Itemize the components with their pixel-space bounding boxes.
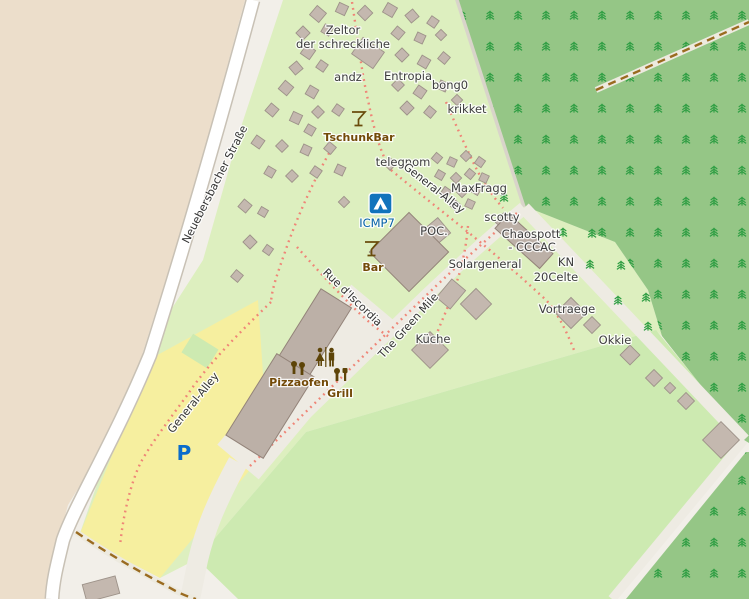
label-andz: andz: [334, 70, 362, 84]
campsite-icon: [369, 193, 392, 214]
label-grill: Grill: [327, 387, 353, 400]
label-bong0: bong0: [432, 78, 468, 92]
label-bar: Bar: [362, 261, 384, 274]
label-zeltor-line1: Zeltor: [326, 23, 361, 37]
map-svg: Zeltor der schreckliche andz Entropia bo…: [0, 0, 749, 599]
label-scotty: scotty: [484, 210, 519, 224]
label-tschunkbar: TschunkBar: [323, 131, 395, 144]
label-20celte: 20Celte: [534, 270, 579, 284]
map-canvas[interactable]: Zeltor der schreckliche andz Entropia bo…: [0, 0, 749, 599]
label-pizzaofen: Pizzaofen: [269, 376, 329, 389]
label-poc: POC.: [420, 224, 448, 238]
label-okkie: Okkie: [599, 333, 632, 347]
label-solargeneral: Solargeneral: [449, 257, 522, 271]
label-krikket: krikket: [447, 102, 487, 116]
label-icmp7: ICMP7: [359, 216, 395, 230]
label-chaospott-line1: Chaospott: [502, 227, 561, 241]
label-kn: KN: [558, 255, 574, 269]
label-maxfragg: MaxFragg: [451, 181, 507, 195]
label-entropia: Entropia: [384, 69, 432, 83]
parking-icon: P: [177, 441, 192, 465]
label-chaospott-line2: - CCCAC: [508, 240, 556, 254]
label-zeltor-line2: der schreckliche: [296, 37, 390, 51]
label-kueche: Küche: [416, 332, 451, 346]
label-vortraege: Vortraege: [539, 302, 595, 316]
